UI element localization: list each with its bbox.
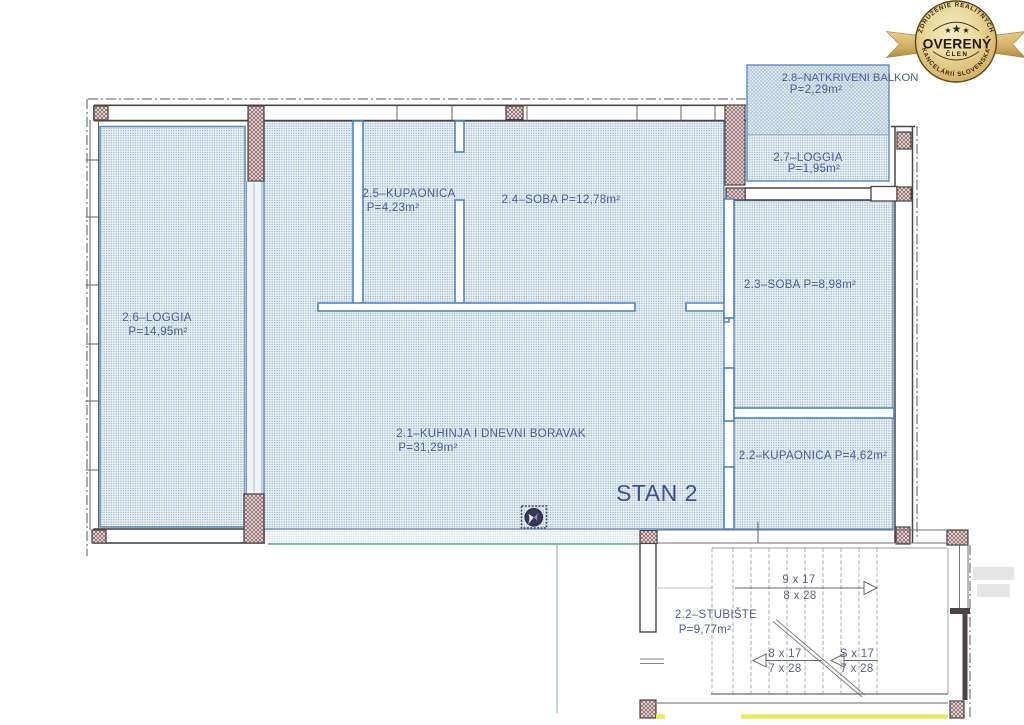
svg-text:7 x 28: 7 x 28: [768, 663, 801, 675]
svg-text:P=1,95m²: P=1,95m²: [788, 163, 841, 175]
svg-text:OVERENÝ: OVERENÝ: [923, 35, 992, 52]
svg-text:2.1–KUHINJA I DNEVNI BORAVAK: 2.1–KUHINJA I DNEVNI BORAVAK: [396, 428, 586, 440]
svg-text:S x 17: S x 17: [840, 648, 874, 660]
svg-text:P=2,29m²: P=2,29m²: [790, 84, 843, 96]
svg-text:2.3–SOBA P=8,98m²: 2.3–SOBA P=8,98m²: [744, 279, 856, 291]
svg-text:2.6–LOGGIA: 2.6–LOGGIA: [122, 312, 192, 324]
svg-text:8 x 17: 8 x 17: [768, 648, 801, 660]
svg-text:2.2–STUBIŠTE: 2.2–STUBIŠTE: [675, 608, 757, 621]
svg-text:8 x 28: 8 x 28: [783, 590, 816, 602]
svg-text:9 x 17: 9 x 17: [782, 574, 815, 586]
svg-text:P=9,77m²: P=9,77m²: [679, 624, 732, 636]
svg-text:STAN 2: STAN 2: [616, 480, 698, 506]
svg-text:ČLEN: ČLEN: [946, 49, 969, 58]
svg-text:★: ★: [962, 26, 969, 35]
svg-text:P=14,95m²: P=14,95m²: [128, 326, 187, 338]
svg-text:2.5–KUPAONICA: 2.5–KUPAONICA: [362, 188, 455, 200]
svg-text:7 x 28: 7 x 28: [840, 663, 873, 675]
svg-text:2.4–SOBA P=12,78m²: 2.4–SOBA P=12,78m²: [502, 194, 621, 206]
svg-text:P=31,29m²: P=31,29m²: [398, 442, 457, 454]
svg-text:★: ★: [944, 26, 951, 35]
svg-text:2.2–KUPAONICA P=4,62m²: 2.2–KUPAONICA P=4,62m²: [739, 450, 888, 462]
svg-text:★: ★: [952, 24, 962, 36]
svg-text:2.8–NATKRIVENI BALKON: 2.8–NATKRIVENI BALKON: [782, 72, 919, 84]
svg-text:P=4,23m²: P=4,23m²: [367, 202, 420, 214]
